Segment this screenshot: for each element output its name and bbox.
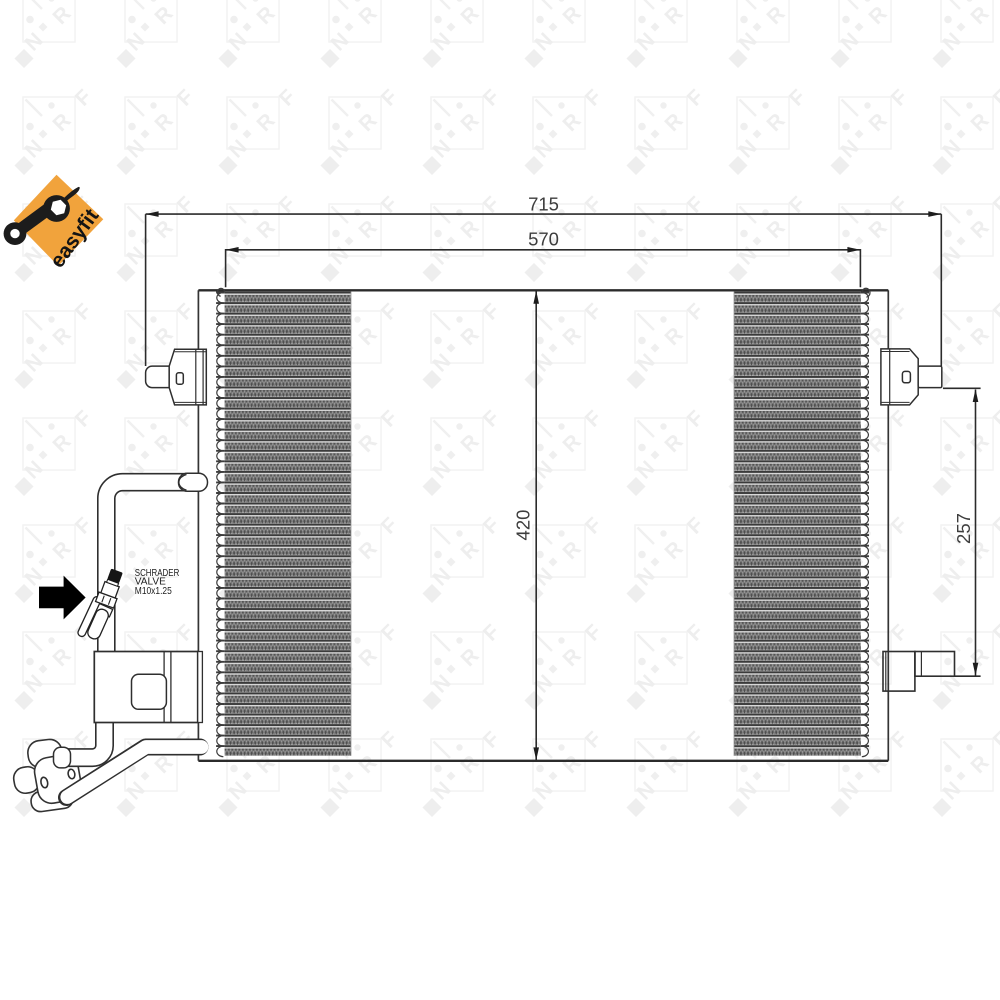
svg-text:420: 420	[513, 510, 534, 541]
svg-text:715: 715	[528, 194, 559, 215]
svg-text:257: 257	[953, 513, 974, 544]
svg-text:570: 570	[528, 228, 559, 249]
svg-text:M10x1.25: M10x1.25	[135, 586, 172, 597]
